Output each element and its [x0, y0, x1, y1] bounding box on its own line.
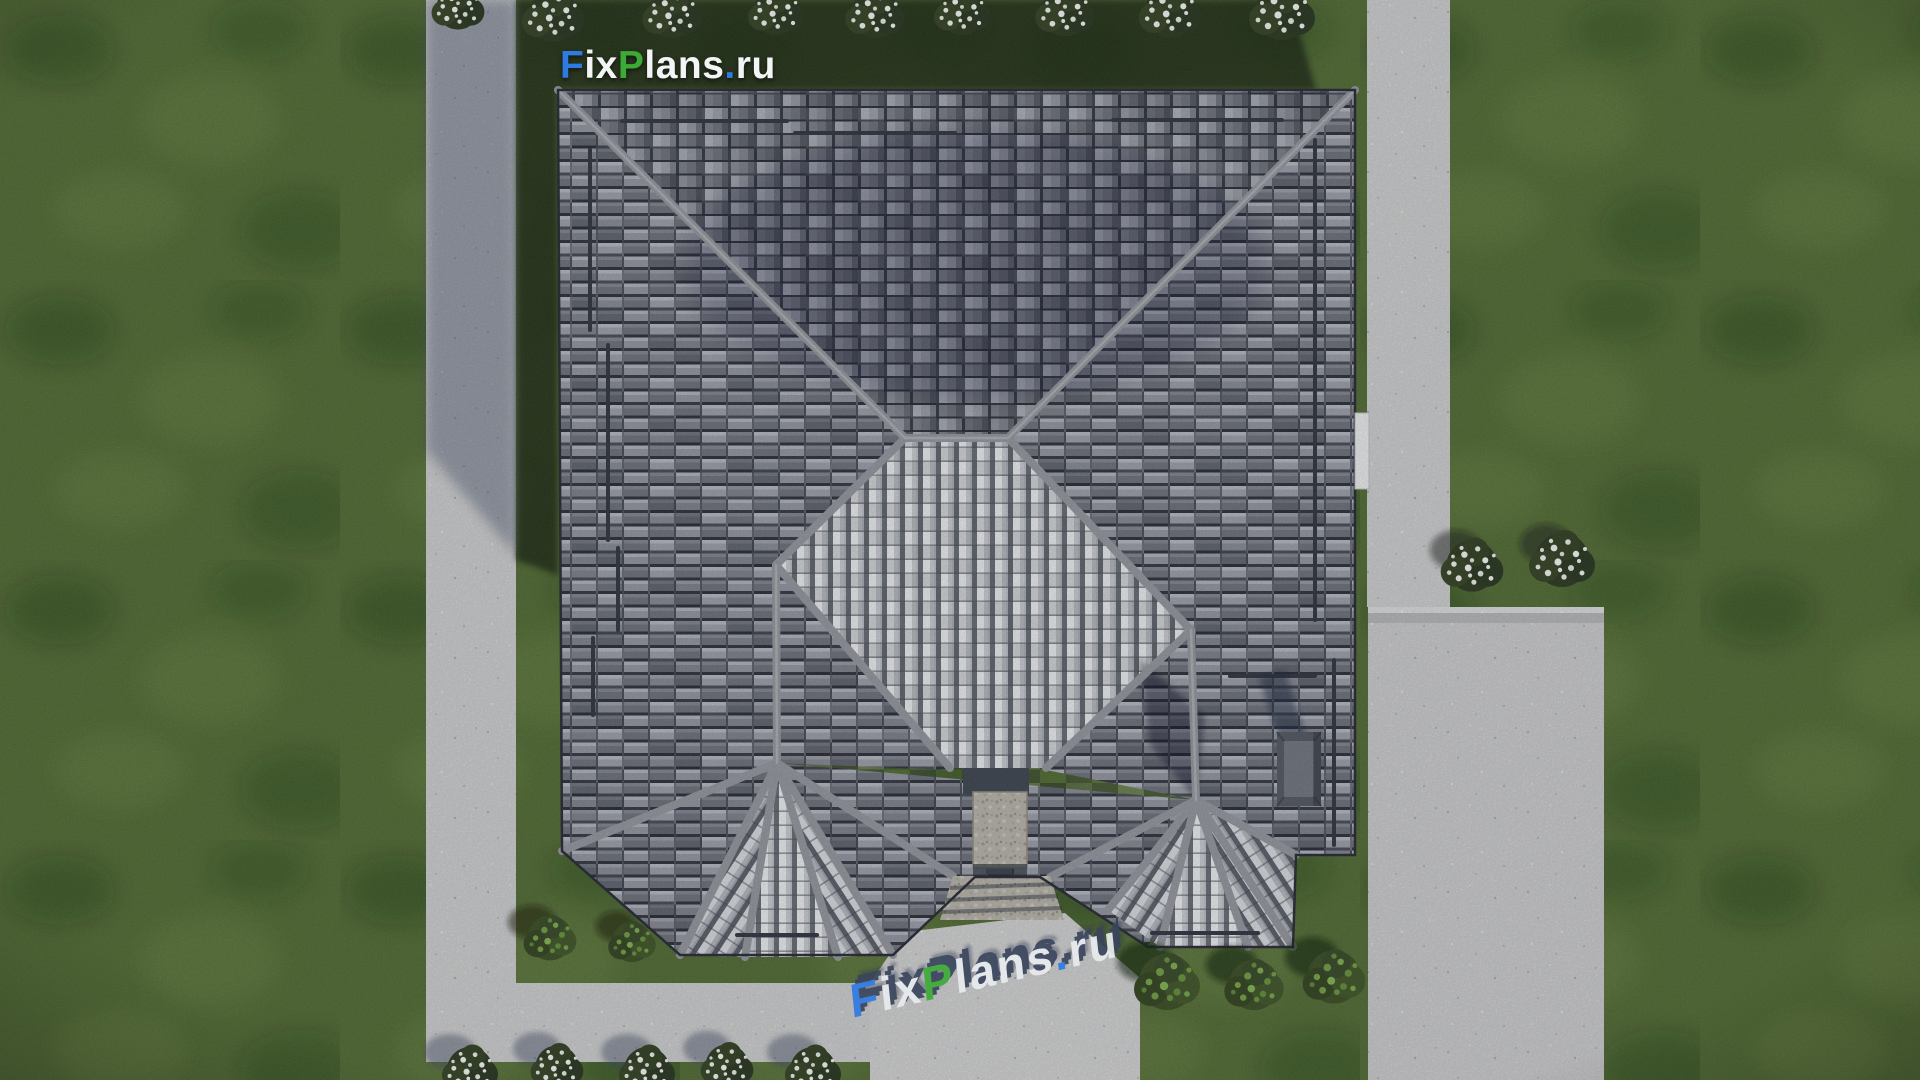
fixplans-logo: FixPlans.ru	[560, 44, 776, 88]
logo-letter: lans	[644, 44, 724, 87]
roof-plan-scene	[0, 0, 1920, 1080]
logo-letter: ix	[584, 44, 618, 87]
logo-letter: .	[724, 44, 735, 87]
logo-letter: ru	[1066, 913, 1121, 978]
logo-letter: F	[560, 44, 584, 87]
logo-letter: ix	[877, 958, 925, 1021]
logo-letter: P	[618, 44, 645, 87]
logo-letter: ru	[736, 44, 776, 87]
site-plan-render: FixPlans.ru FixPlans.ru	[0, 0, 1920, 1080]
vignette	[0, 0, 1920, 1080]
